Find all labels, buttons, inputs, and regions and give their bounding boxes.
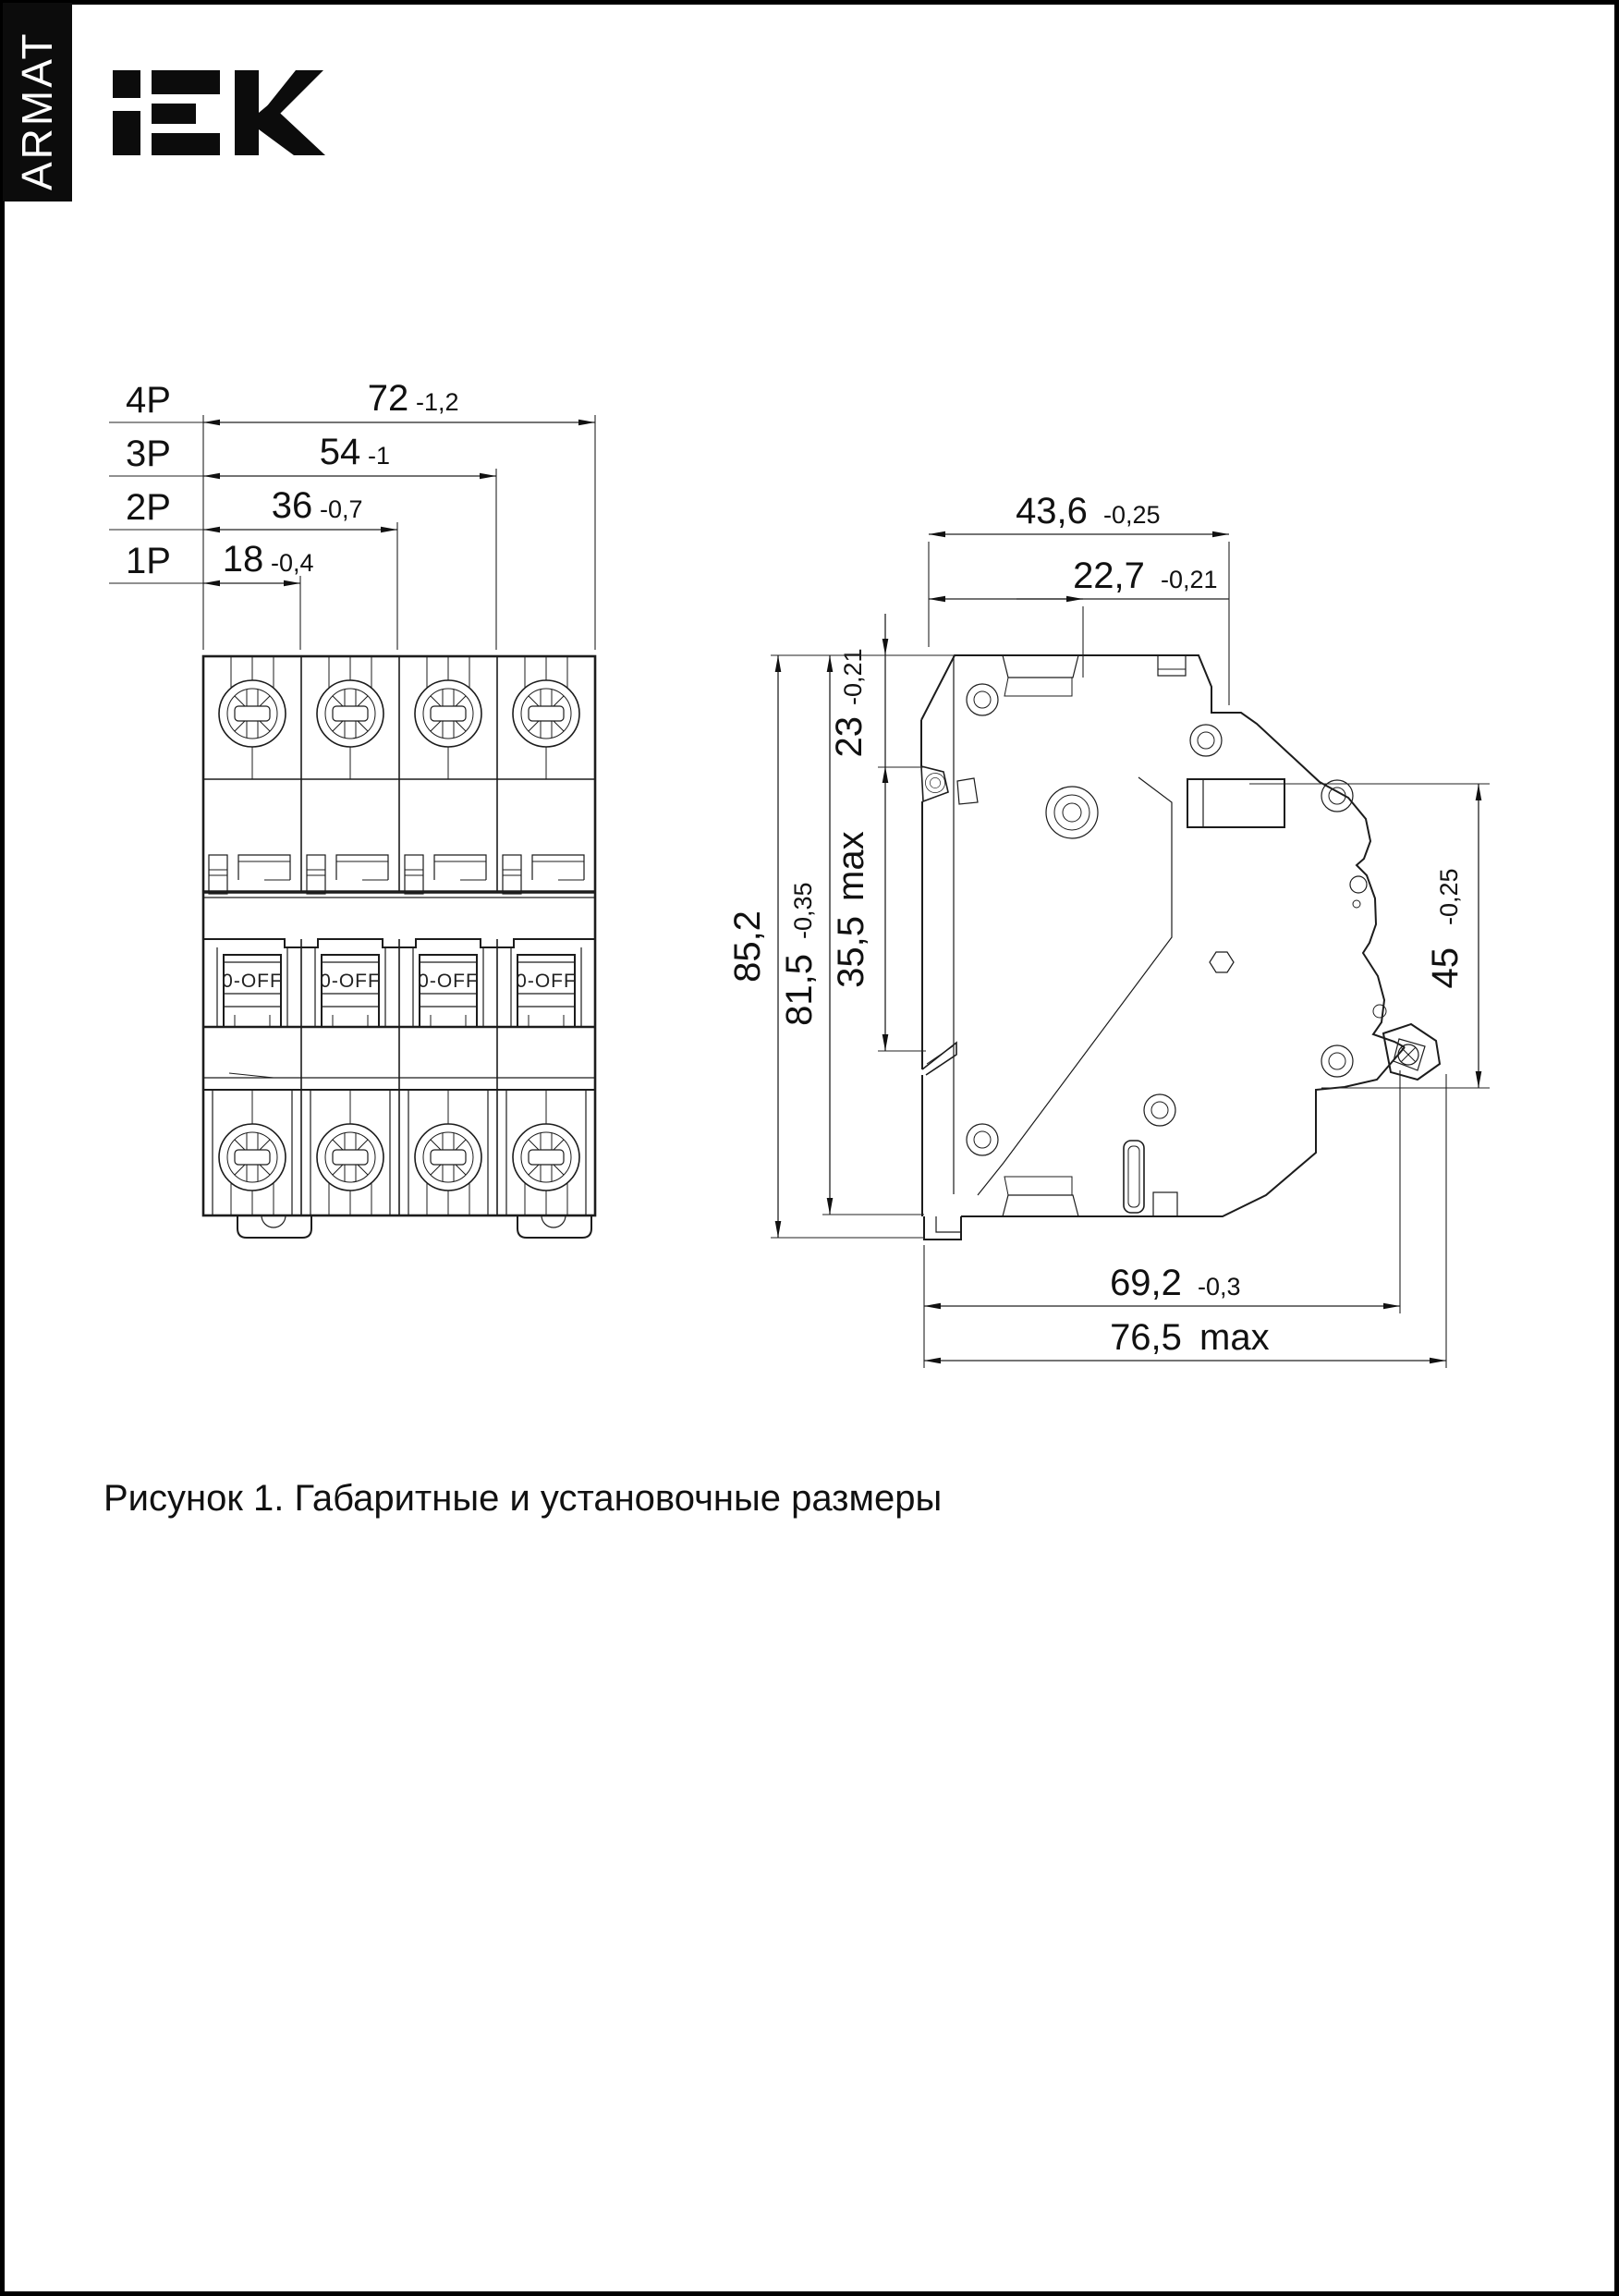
- dim-value-overall-depth: 43,6: [1016, 491, 1088, 531]
- datasheet-page: ARMAT 4P 72 -1,2: [0, 0, 1619, 2296]
- dim-value-1p: 18: [223, 539, 264, 580]
- dim-value-mount-depth: 69,2: [1110, 1263, 1182, 1303]
- handle-window-4: 0-OFF: [511, 947, 581, 1027]
- dim-value-top-to-din: 23: [829, 716, 870, 758]
- dim-value-overall-height: 85,2: [727, 910, 768, 983]
- handle-window-3: 0-OFF: [413, 947, 483, 1027]
- mid-clip-tabs: [209, 855, 584, 894]
- dim-max-depth: 76,5 max: [924, 1074, 1446, 1368]
- pole-label-3p: 3P: [126, 434, 171, 474]
- side-view: 43,6 -0,25 22,7 -0,21 23 -0,21: [727, 491, 1490, 1368]
- iek-logo: [113, 70, 325, 155]
- figure-caption: Рисунок 1. Габаритные и установочные раз…: [103, 1478, 942, 1519]
- dim-value-max-depth: 76,5: [1110, 1317, 1182, 1358]
- dim-suffix-din-pocket: max: [831, 831, 871, 901]
- dim-tol-body-height: -0,35: [789, 882, 817, 939]
- dim-top-to-din: 23 -0,21: [829, 614, 924, 767]
- dim-tol-front-depth: -0,21: [1161, 566, 1218, 593]
- front-view-dimensions: 4P 72 -1,2 3P 54 -1 2P 36 -0,7: [109, 378, 595, 650]
- dim-tol-top-to-din: -0,21: [839, 648, 867, 705]
- handle-label-1: 0-OFF: [222, 971, 283, 992]
- pole-label-4p: 4P: [126, 380, 171, 421]
- dim-tol-mount-depth: -0,3: [1198, 1273, 1241, 1301]
- handle-label-3: 0-OFF: [418, 971, 479, 992]
- dim-overall-depth: 43,6 -0,25: [929, 491, 1229, 705]
- armat-sidebar-label: ARMAT: [13, 31, 61, 190]
- front-view: 4P 72 -1,2 3P 54 -1 2P 36 -0,7: [109, 378, 595, 1238]
- dim-front-depth: 22,7 -0,21: [929, 556, 1229, 678]
- dim-tol-panel-aperture: -0,25: [1435, 868, 1463, 925]
- handle-label-2: 0-OFF: [320, 971, 381, 992]
- armat-sidebar: ARMAT: [3, 3, 72, 202]
- dim-value-panel-aperture: 45: [1425, 947, 1466, 989]
- pole-label-2p: 2P: [126, 487, 171, 528]
- din-rail-clips: [237, 1215, 591, 1238]
- dim-tol-overall-depth: -0,25: [1103, 501, 1161, 529]
- handle-window-2: 0-OFF: [315, 947, 385, 1027]
- dim-value-body-height: 81,5: [779, 954, 820, 1026]
- handle-label-4: 0-OFF: [516, 971, 577, 992]
- side-view-dimensions: 43,6 -0,25 22,7 -0,21 23 -0,21: [727, 491, 1490, 1368]
- dim-din-pocket: 35,5 max: [831, 766, 926, 1051]
- dim-panel-aperture: 45 -0,25: [1249, 784, 1490, 1088]
- dim-value-din-pocket: 35,5: [831, 916, 871, 988]
- side-view-body: [921, 655, 1440, 1240]
- dim-tol-2p: -0,7: [320, 495, 363, 523]
- dim-tol-4p: -1,2: [416, 388, 459, 416]
- front-view-body: 0-OFF 0-OFF 0-OFF: [203, 656, 595, 1238]
- dim-tol-3p: -1: [368, 442, 390, 470]
- dim-tol-1p: -0,4: [271, 549, 314, 577]
- dim-row-1p: 1P 18 -0,4: [109, 539, 314, 650]
- dim-value-3p: 54: [320, 432, 361, 472]
- handle-window-1: 0-OFF: [217, 947, 287, 1027]
- page-border: [3, 3, 1617, 2294]
- pole-label-1p: 1P: [126, 541, 171, 581]
- dim-value-2p: 36: [272, 485, 313, 526]
- dim-value-4p: 72: [368, 378, 409, 419]
- dim-value-front-depth: 22,7: [1073, 556, 1145, 596]
- technical-drawing: ARMAT 4P 72 -1,2: [0, 0, 1619, 2296]
- dim-suffix-max-depth: max: [1199, 1317, 1270, 1358]
